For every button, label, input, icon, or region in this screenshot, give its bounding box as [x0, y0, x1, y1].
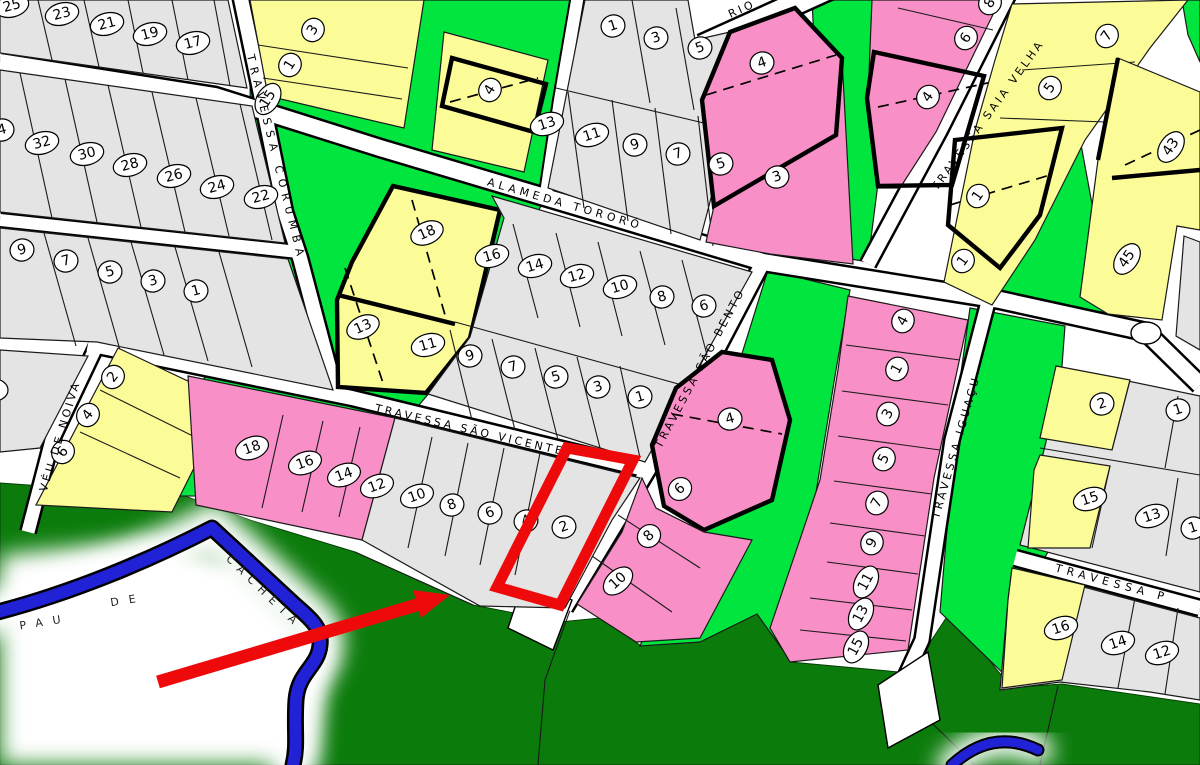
roundabout: [1131, 322, 1161, 344]
map-canvas: 2523211917432302826242297531311524618134…: [0, 0, 1200, 765]
cadastral-map: 2523211917432302826242297531311524618134…: [0, 0, 1200, 765]
